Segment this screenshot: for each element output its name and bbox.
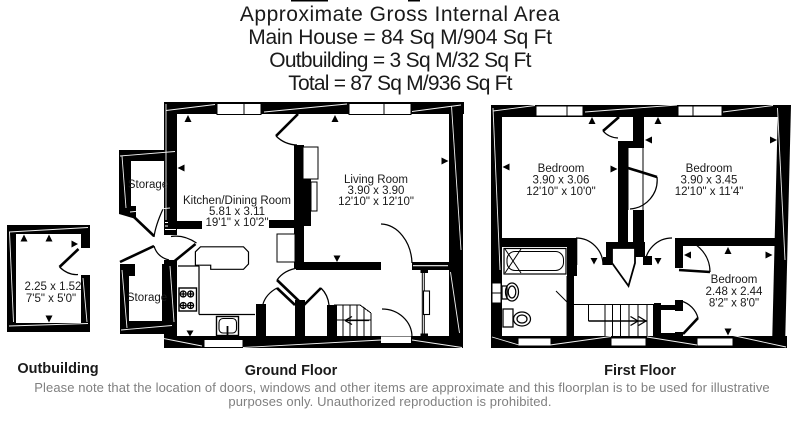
svg-text:Outbuilding: Outbuilding (17, 361, 98, 377)
svg-text:2.25 x 1.52: 2.25 x 1.52 (25, 281, 82, 293)
svg-text:19'1" x 10'2": 19'1" x 10'2" (205, 217, 268, 229)
svg-text:12'10" x 11'4": 12'10" x 11'4" (675, 186, 744, 198)
svg-text:12'10" x 12'10": 12'10" x 12'10" (338, 196, 414, 208)
svg-text:Approximate Gross Internal Are: Approximate Gross Internal Area (240, 3, 560, 26)
svg-text:Please note that the location: Please note that the location of doors, … (34, 380, 770, 395)
svg-text:Bedroom: Bedroom (538, 163, 585, 175)
svg-text:Storage: Storage (127, 292, 167, 304)
svg-text:3.90 x 3.06: 3.90 x 3.06 (533, 175, 590, 187)
svg-text:7'5" x 5'0": 7'5" x 5'0" (26, 293, 76, 305)
svg-text:Outbuilding = 3 Sq M/32 Sq Ft: Outbuilding = 3 Sq M/32 Sq Ft (269, 49, 531, 72)
svg-text:Main House = 84 Sq M/904 Sq Ft: Main House = 84 Sq M/904 Sq Ft (248, 26, 552, 49)
svg-text:8'2" x 8'0": 8'2" x 8'0" (709, 298, 759, 310)
svg-text:12'10" x 10'0": 12'10" x 10'0" (526, 186, 595, 198)
svg-text:Ground Floor: Ground Floor (245, 363, 338, 379)
svg-text:First Floor: First Floor (604, 363, 676, 379)
svg-text:Bedroom: Bedroom (686, 163, 733, 175)
svg-text:Storage: Storage (128, 179, 168, 191)
svg-text:Bedroom: Bedroom (711, 274, 758, 286)
svg-text:purposes only. Unauthorized re: purposes only. Unauthorized reproduction… (228, 394, 551, 409)
svg-text:3.90 x 3.45: 3.90 x 3.45 (681, 175, 738, 187)
svg-text:2.48 x 2.44: 2.48 x 2.44 (706, 286, 764, 298)
svg-text:Total = 87 Sq M/936 Sq Ft: Total = 87 Sq M/936 Sq Ft (288, 72, 512, 95)
